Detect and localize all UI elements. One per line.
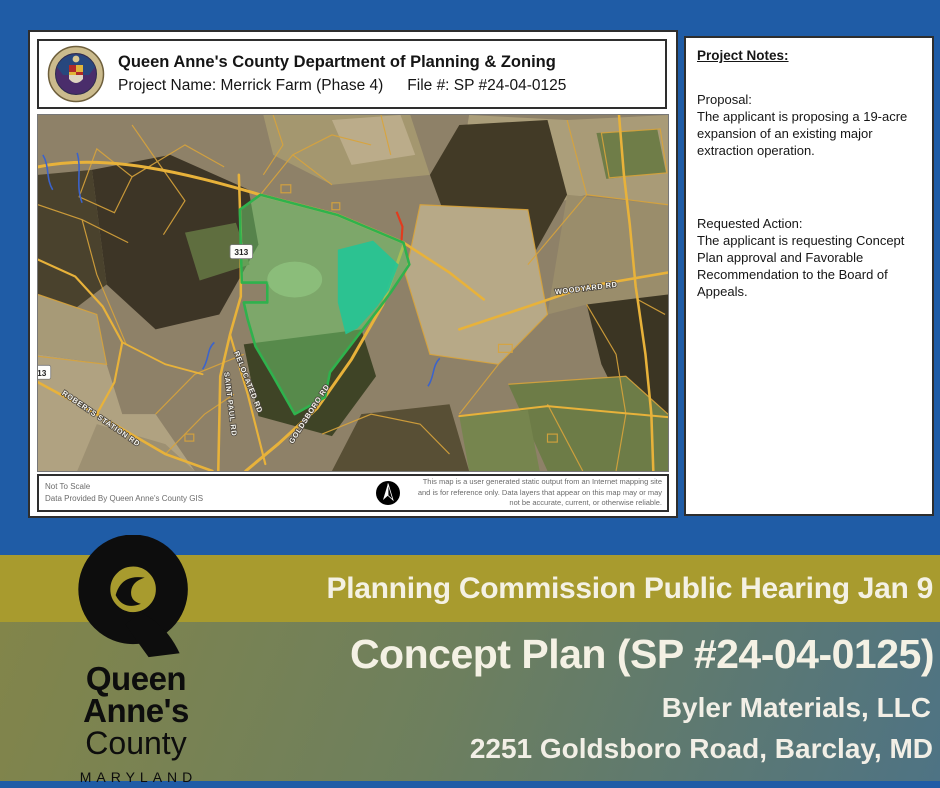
map-graphic: 313 313 WOODYARD RD SAINT PAUL RD ROBERT… xyxy=(38,115,668,471)
file-number: File #: SP #24-04-0125 xyxy=(407,77,566,94)
county-logo: Queen Anne's County MARYLAND xyxy=(66,535,206,785)
map-footer-notes: Not To Scale Data Provided By Queen Anne… xyxy=(39,481,285,505)
map-footer: Not To Scale Data Provided By Queen Anne… xyxy=(37,474,669,512)
svg-text:313: 313 xyxy=(234,247,248,257)
notes-heading: Project Notes: xyxy=(697,48,921,63)
requested-action-text: The applicant is requesting Concept Plan… xyxy=(697,232,921,301)
north-arrow-icon xyxy=(375,480,401,506)
aerial-map: 313 313 WOODYARD RD SAINT PAUL RD ROBERT… xyxy=(37,114,669,472)
document-header: Queen Anne's County Department of Planni… xyxy=(37,39,667,109)
logo-line-county: County xyxy=(66,727,206,761)
project-notes-panel: Project Notes: Proposal: The applicant i… xyxy=(684,36,934,516)
proposal-block: Proposal: The applicant is proposing a 1… xyxy=(697,91,921,160)
planning-document: Queen Anne's County Department of Planni… xyxy=(28,30,678,518)
logo-line-queen: Queen xyxy=(66,663,206,694)
applicant-name: Byler Materials, LLC xyxy=(662,692,940,724)
site-address: 2251 Goldsboro Road, Barclay, MD xyxy=(470,733,940,765)
document-title: Queen Anne's County Department of Planni… xyxy=(118,51,566,75)
hearing-text: Planning Commission Public Hearing Jan 9 xyxy=(327,572,940,606)
q-wave-icon xyxy=(73,535,199,663)
plan-title: Concept Plan (SP #24-04-0125) xyxy=(350,631,940,678)
logo-line-annes: Anne's xyxy=(66,694,206,727)
requested-action-label: Requested Action: xyxy=(697,215,921,232)
scale-note: Not To Scale xyxy=(45,481,285,493)
header-text: Queen Anne's County Department of Planni… xyxy=(118,51,566,97)
county-seal xyxy=(47,45,105,103)
requested-action-block: Requested Action: The applicant is reque… xyxy=(697,215,921,301)
route-shield-313: 313 xyxy=(230,245,253,259)
project-line: Project Name: Merrick Farm (Phase 4)File… xyxy=(118,75,566,97)
map-disclaimer: This map is a user generated static outp… xyxy=(412,477,667,510)
svg-text:313: 313 xyxy=(38,368,47,378)
project-name: Project Name: Merrick Farm (Phase 4) xyxy=(118,77,383,94)
logo-line-maryland: MARYLAND xyxy=(66,769,206,785)
route-shield-313-edge: 313 xyxy=(38,365,51,379)
wave-icon xyxy=(116,577,145,606)
proposal-text: The applicant is proposing a 19-acre exp… xyxy=(697,108,921,159)
flyer: Queen Anne's County Department of Planni… xyxy=(0,0,940,788)
proposal-label: Proposal: xyxy=(697,91,921,108)
data-source-note: Data Provided By Queen Anne's County GIS xyxy=(45,493,285,505)
